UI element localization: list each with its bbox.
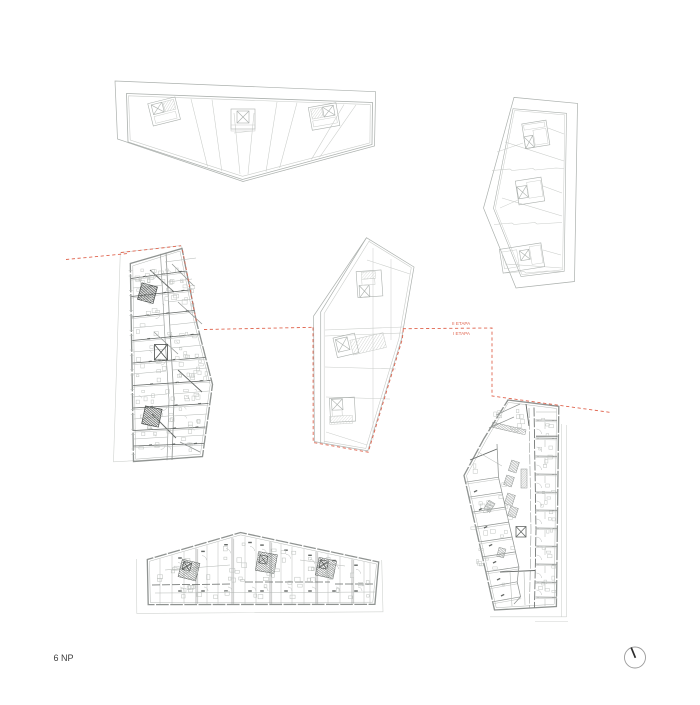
svg-text:I ETAPA: I ETAPA [453,331,471,336]
svg-text:6 NP: 6 NP [54,653,74,663]
svg-text:II ETAPA: II ETAPA [452,321,471,326]
